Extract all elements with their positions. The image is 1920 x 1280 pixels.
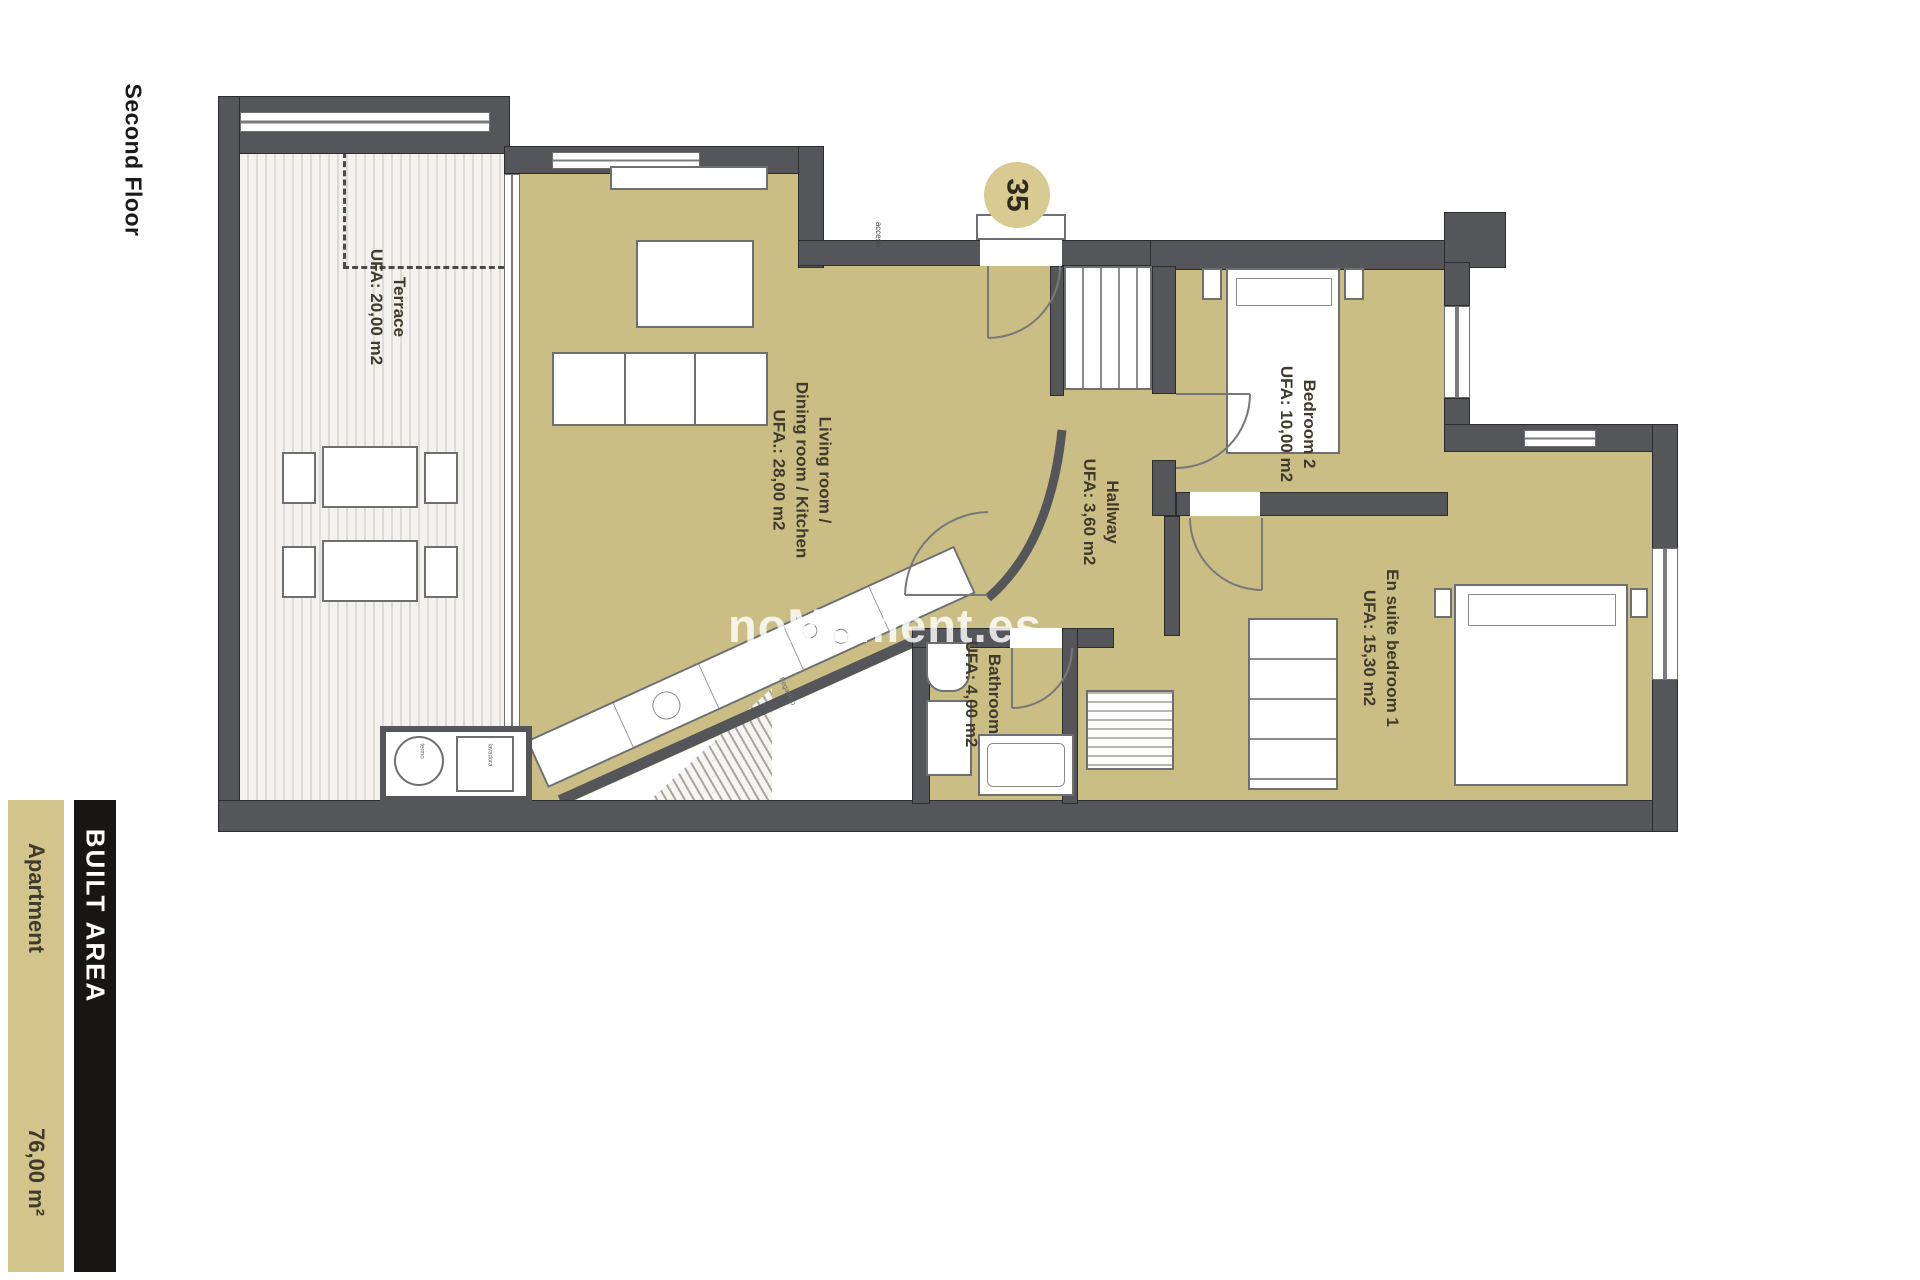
ensuite-area-ext (1468, 446, 1678, 494)
ensuite-shower (1086, 690, 1174, 770)
living-name-1: Living room / (812, 382, 835, 559)
ensuite-name: En suite bedroom 1 (1380, 569, 1403, 727)
wall-ensuite-shower (1164, 516, 1180, 636)
terrace-chair (424, 546, 458, 598)
nightstand (1344, 268, 1364, 300)
terrace-table (322, 540, 418, 602)
washer-tiny-label: lavadora (487, 743, 493, 766)
terrace-glass-door (504, 174, 520, 802)
terrace-window (240, 112, 490, 132)
terrace-chair (282, 452, 316, 504)
pillow (1236, 278, 1332, 306)
washing-machine (456, 736, 514, 792)
built-area-row-value: 76,00 m² (23, 1128, 49, 1216)
unit-number-badge: 35 (984, 162, 1050, 228)
living-area: UFA.: 28,00 m2 (767, 382, 790, 559)
sink-bowl-icon (648, 687, 685, 724)
floor-title: Second Floor (120, 84, 147, 237)
nightstand (1630, 588, 1648, 618)
pillow (1468, 594, 1616, 626)
bedroom2-name: Bedroom 2 (1297, 366, 1320, 482)
bathtub-inner (987, 743, 1065, 787)
sofa-cushion-divider (694, 354, 696, 424)
wall-hall-bedroom2 (1152, 266, 1176, 394)
ensuite-area: UFA: 15,30 m2 (1357, 569, 1380, 727)
ufa-dashed-line (343, 152, 346, 268)
bedroom2-label: Bedroom 2 UFA: 10,00 m2 (1274, 366, 1320, 482)
entry-tiny-label: acceso (874, 222, 883, 247)
terrace-label: Terrace UFA: 20,00 m2 (364, 249, 410, 365)
coffee-table (636, 240, 754, 328)
bathroom-label: Bathroom UFA: 4,00 m2 (959, 641, 1005, 748)
built-area-row-label: Apartment (23, 843, 49, 953)
wall-bottom (218, 800, 1678, 832)
bathroom-area: UFA: 4,00 m2 (959, 641, 982, 748)
terrace-chair (282, 546, 316, 598)
hallway-area: UFA: 3,60 m2 (1077, 459, 1100, 566)
terrace-area: UFA: 20,00 m2 (364, 249, 387, 365)
wall-corner-block (1444, 212, 1506, 268)
wall-closet-back (1050, 266, 1064, 396)
terrace-chair (424, 452, 458, 504)
hallway-closet (1064, 266, 1152, 390)
entry-door-opening (980, 240, 1062, 266)
hallway-label: Hallway UFA: 3,60 m2 (1077, 459, 1123, 566)
ensuite-door-opening (1190, 492, 1260, 516)
nightstand (1434, 588, 1452, 618)
living-name-2: Dining room / Kitchen (790, 382, 813, 559)
nightstand (1202, 268, 1222, 300)
hallway-name: Hallway (1100, 459, 1123, 566)
built-area-header: BUILT AREA (80, 829, 111, 1004)
sofa (552, 352, 768, 426)
bathroom-name: Bathroom (982, 641, 1005, 748)
unit-number: 35 (1000, 178, 1034, 211)
watermark: noMoment.es (728, 598, 1042, 653)
ensuite-top-window (1524, 430, 1596, 447)
bedroom2-area: UFA: 10,00 m2 (1274, 366, 1297, 482)
sideboard (610, 166, 768, 190)
terrace-name: Terrace (387, 249, 410, 365)
ensuite-bed (1454, 584, 1628, 786)
wall-right-upper (1444, 262, 1470, 306)
terrace-table (322, 446, 418, 508)
wall-bedroom2-top (1150, 240, 1452, 270)
sofa-cushion-divider (624, 354, 626, 424)
living-label: Living room / Dining room / Kitchen UFA.… (767, 382, 836, 559)
wall-hall-bedroom2 (1152, 460, 1176, 516)
bedroom2-window (1444, 306, 1470, 398)
boiler-tiny-label: termo (419, 743, 425, 758)
ensuite-window (1652, 548, 1678, 680)
ensuite-closet (1248, 618, 1338, 790)
wall-left (218, 96, 240, 832)
floor-plan-canvas: Second Floor fregadero (0, 0, 1920, 1280)
ensuite-label: En suite bedroom 1 UFA: 15,30 m2 (1357, 569, 1403, 727)
